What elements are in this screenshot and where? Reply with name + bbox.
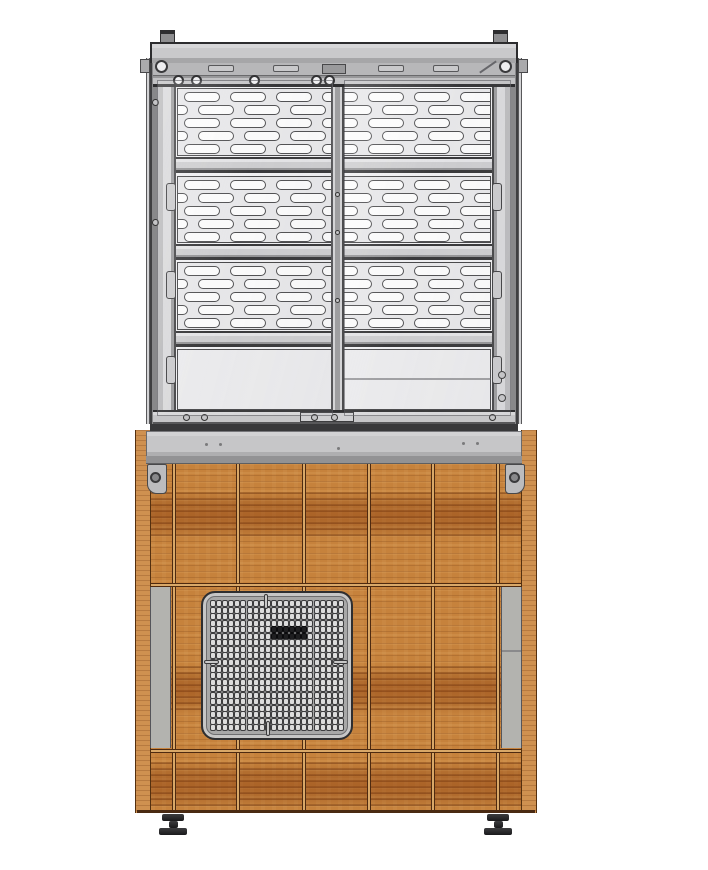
grille-hole — [259, 724, 265, 731]
wood-grain-streak — [151, 492, 521, 538]
grille-hole — [283, 659, 289, 666]
adjustable-foot-plate — [159, 828, 187, 835]
product-render-display-case — [0, 0, 708, 870]
grille-hole — [314, 672, 320, 679]
grille-hole — [301, 600, 307, 607]
grille-hole — [240, 659, 246, 666]
countertop-screw — [337, 447, 340, 450]
plank-seam-vertical — [172, 462, 176, 812]
mullion-screw — [335, 192, 340, 197]
grille-hole — [228, 659, 234, 666]
grille-hole-field — [201, 591, 353, 740]
grille-hole — [283, 724, 289, 731]
grille-hole — [332, 724, 338, 731]
countertop-screw — [476, 442, 479, 445]
grille-hole — [307, 672, 313, 679]
grille-hole — [283, 672, 289, 679]
plank-seam-horizontal — [151, 583, 521, 587]
track-clip — [273, 65, 299, 72]
grille-hole — [259, 659, 265, 666]
side-column-right — [501, 587, 522, 748]
grille-hole — [307, 724, 313, 731]
adjustable-foot-nut — [162, 814, 184, 821]
grille-hole — [307, 600, 313, 607]
grille-hole — [326, 724, 332, 731]
grille-hole — [247, 659, 253, 666]
grille-hole — [271, 659, 277, 666]
side-column-left — [150, 587, 171, 748]
grille-hole — [216, 724, 222, 731]
wood-grain-streak — [151, 762, 521, 808]
track-clip — [378, 65, 404, 72]
grille-hole — [216, 600, 222, 607]
adjustable-foot-plate — [484, 828, 512, 835]
corner-bolt-left — [150, 472, 161, 483]
grille-hole — [320, 672, 326, 679]
grille-hole — [295, 724, 301, 731]
grille-hole — [222, 672, 228, 679]
sliding-door-left — [157, 80, 333, 416]
grille-hole — [240, 672, 246, 679]
grille-hole — [265, 659, 271, 666]
grille-hole — [228, 724, 234, 731]
grille-hole — [234, 600, 240, 607]
grille-hole — [259, 672, 265, 679]
grille-notch-right — [333, 660, 348, 664]
countertop-screw — [219, 443, 222, 446]
grille-hole — [289, 600, 295, 607]
grille-hole — [234, 659, 240, 666]
grille-hole — [247, 600, 253, 607]
grille-hole — [253, 672, 259, 679]
grille-hole — [338, 600, 344, 607]
case-base-shadow — [150, 424, 518, 431]
grille-hole — [338, 672, 344, 679]
countertop — [146, 431, 522, 456]
grille-hole — [283, 600, 289, 607]
countertop-screw — [462, 442, 465, 445]
plank-seam-vertical — [431, 462, 435, 812]
grille-hole — [271, 600, 277, 607]
countertop-screw — [205, 443, 208, 446]
grille-hole — [320, 724, 326, 731]
grille-hole — [234, 672, 240, 679]
grille-hole — [295, 672, 301, 679]
mullion-screw — [335, 298, 340, 303]
grille-hole — [247, 724, 253, 731]
grille-hole — [307, 659, 313, 666]
grille-notch-left — [204, 660, 219, 664]
plank-seam-horizontal — [151, 749, 521, 753]
grille-hole — [314, 600, 320, 607]
glass-edge-right — [518, 58, 522, 424]
grille-hole — [222, 659, 228, 666]
grille-hole — [332, 672, 338, 679]
adjustable-foot-nut — [487, 814, 509, 821]
side-bolt-right — [499, 60, 512, 73]
countertop-shadow-edge — [146, 456, 522, 464]
track-clip — [208, 65, 234, 72]
grille-notch-bottom — [266, 721, 270, 736]
grille-hole — [271, 672, 277, 679]
mullion-screw — [335, 230, 340, 235]
door-latch — [322, 64, 346, 74]
base-bottom-edge — [137, 810, 535, 813]
corner-bolt-right — [509, 472, 520, 483]
grille-hole — [314, 659, 320, 666]
grille-hole — [295, 659, 301, 666]
canopy — [150, 42, 518, 63]
track-clip — [433, 65, 459, 72]
grille-hole — [301, 672, 307, 679]
grille-hole — [289, 659, 295, 666]
adjustable-foot-stem — [169, 821, 178, 828]
grille-hole — [326, 600, 332, 607]
grille-hole — [314, 724, 320, 731]
grille-notch-top — [264, 594, 268, 609]
grille-hole — [326, 672, 332, 679]
grille-hole — [222, 600, 228, 607]
grille-hole — [240, 724, 246, 731]
plank-seam-vertical — [367, 462, 371, 812]
grille-hole — [295, 600, 301, 607]
grille-hole — [332, 600, 338, 607]
grille-hole — [326, 659, 332, 666]
grille-hole — [253, 659, 259, 666]
sliding-door-right — [344, 80, 511, 416]
grille-hole — [222, 724, 228, 731]
grille-hole — [234, 724, 240, 731]
grille-hole — [228, 672, 234, 679]
grille-hole — [301, 724, 307, 731]
grille-hole — [216, 672, 222, 679]
grille-hole — [253, 724, 259, 731]
grille-hole — [320, 600, 326, 607]
grille-hole — [289, 672, 295, 679]
grille-hole — [228, 600, 234, 607]
grille-hole — [253, 600, 259, 607]
grille-hole — [320, 659, 326, 666]
side-bolt-left — [155, 60, 168, 73]
side-column-notch — [502, 650, 521, 652]
grille-hole — [271, 724, 277, 731]
grille-hole — [338, 724, 344, 731]
grille-hole — [289, 724, 295, 731]
grille-hole — [240, 600, 246, 607]
side-tab-left — [140, 59, 150, 73]
grille-hole — [247, 672, 253, 679]
grille-hole — [265, 672, 271, 679]
adjustable-foot-stem — [494, 821, 503, 828]
side-tab-right — [518, 59, 528, 73]
plank-seam-vertical — [496, 462, 500, 812]
grille-hole — [301, 659, 307, 666]
